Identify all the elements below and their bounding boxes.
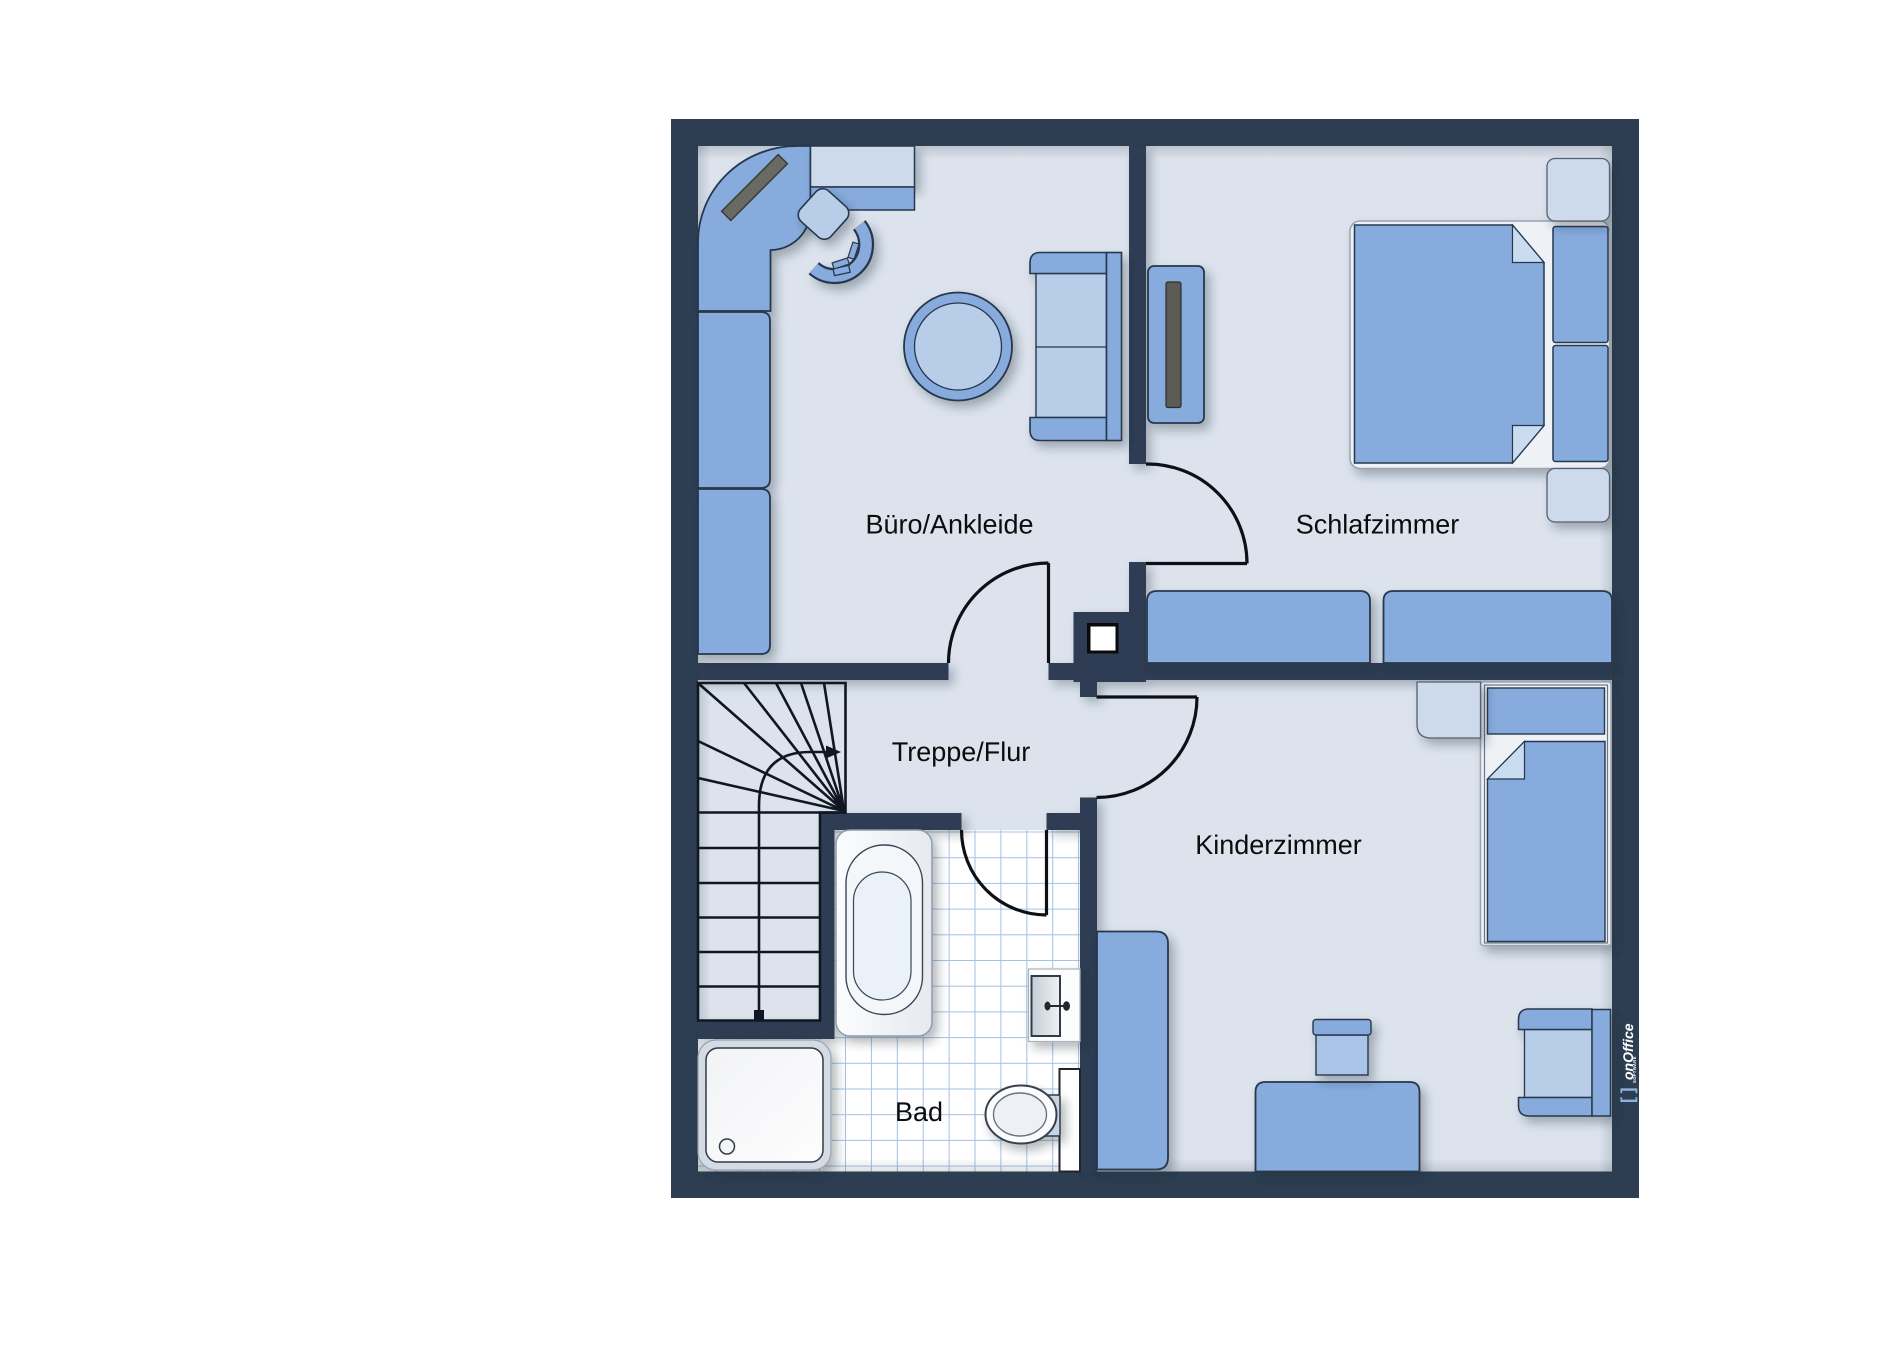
svg-text:Bad: Bad [895,1097,943,1127]
svg-text:Büro/Ankleide: Büro/Ankleide [865,510,1033,540]
svg-text:Schlafzimmer: Schlafzimmer [1296,510,1460,540]
svg-text:Kinderzimmer: Kinderzimmer [1195,830,1362,860]
svg-text:SOFTWARE: SOFTWARE [1632,1056,1637,1083]
svg-text:Treppe/Flur: Treppe/Flur [892,737,1031,767]
svg-text:[ ]: [ ] [1618,1087,1638,1103]
